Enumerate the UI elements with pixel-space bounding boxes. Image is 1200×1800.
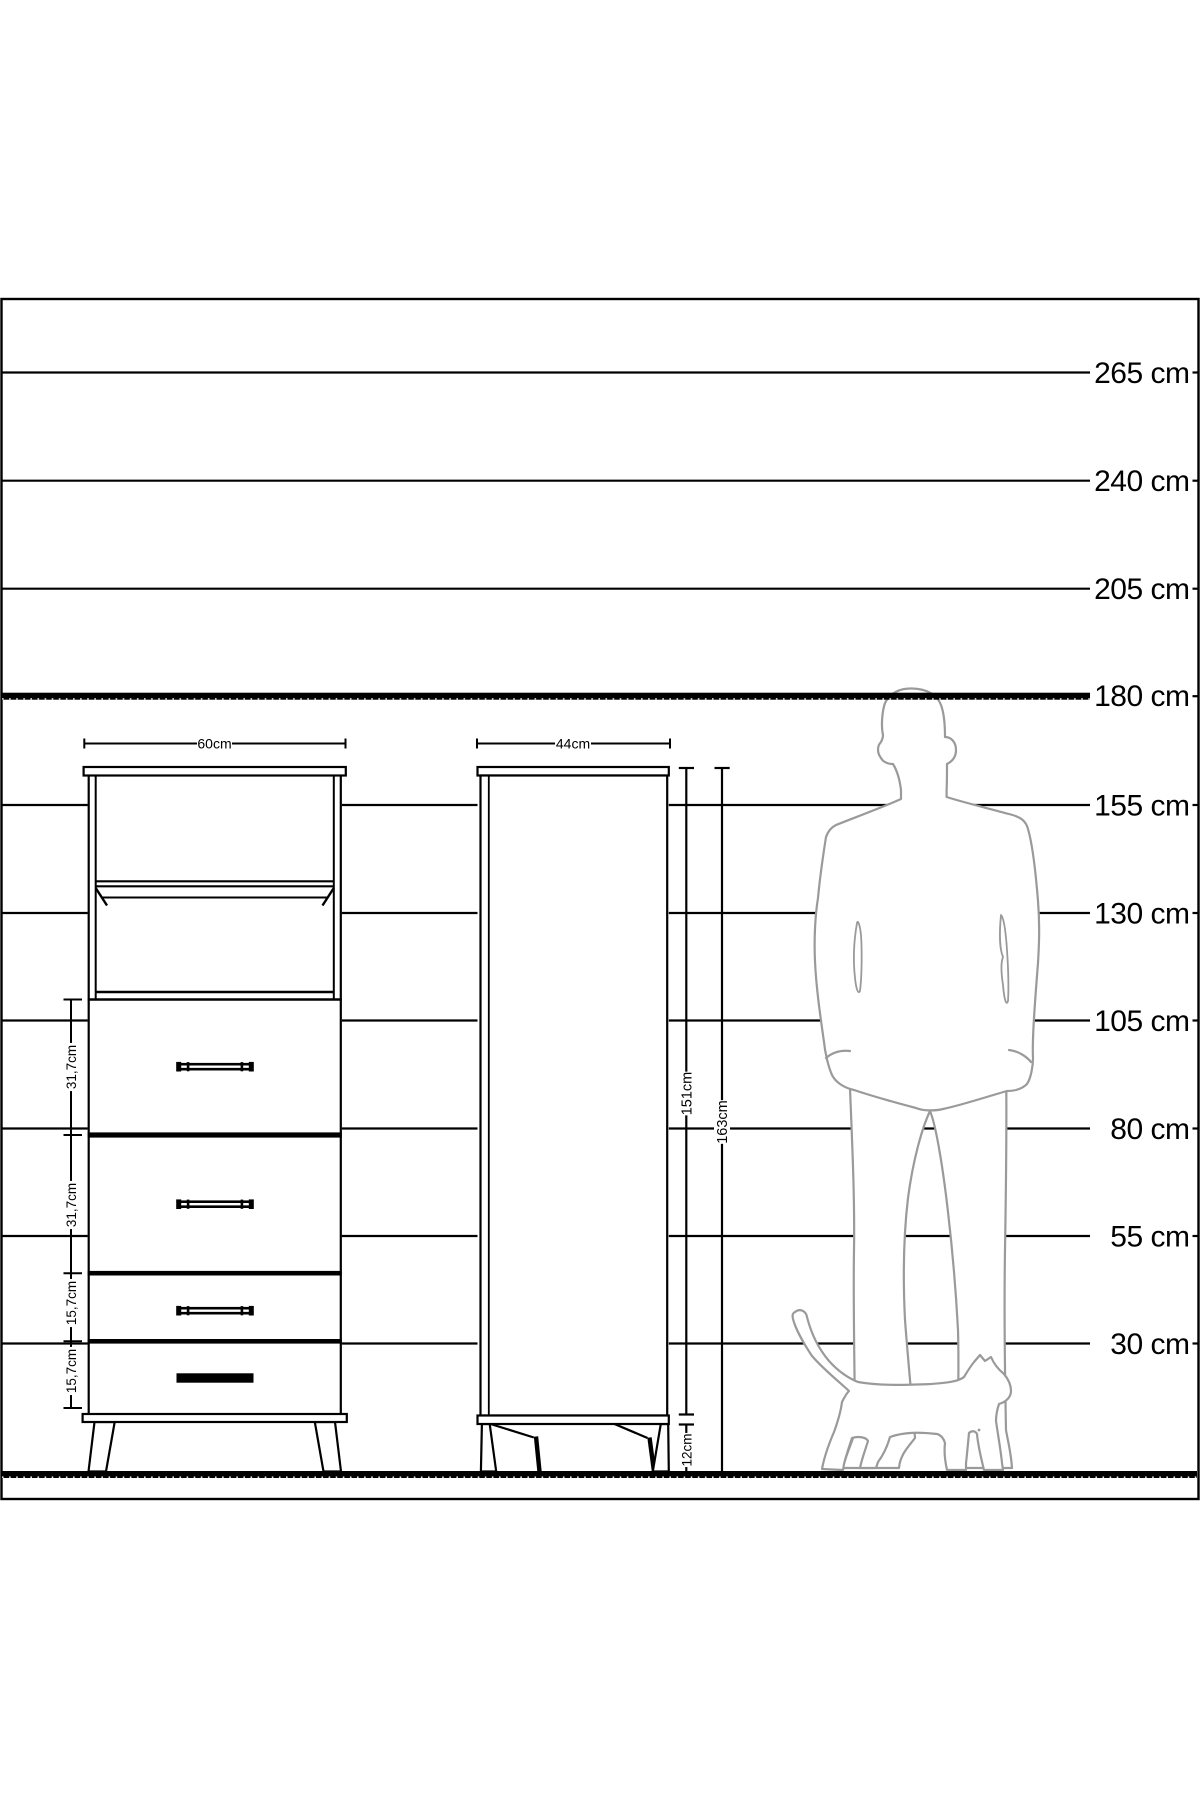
svg-text:155 cm: 155 cm xyxy=(1094,790,1189,823)
svg-text:151cm: 151cm xyxy=(679,1072,695,1116)
svg-text:265 cm: 265 cm xyxy=(1094,357,1189,390)
svg-text:240 cm: 240 cm xyxy=(1094,465,1189,498)
svg-text:80 cm: 80 cm xyxy=(1110,1113,1189,1146)
svg-text:55 cm: 55 cm xyxy=(1110,1221,1189,1254)
svg-text:205 cm: 205 cm xyxy=(1094,573,1189,606)
svg-text:105 cm: 105 cm xyxy=(1094,1005,1189,1038)
svg-text:12cm: 12cm xyxy=(679,1433,694,1466)
svg-text:180 cm: 180 cm xyxy=(1094,680,1189,713)
svg-text:30 cm: 30 cm xyxy=(1110,1328,1189,1361)
svg-text:15,7cm: 15,7cm xyxy=(64,1281,79,1325)
svg-text:44cm: 44cm xyxy=(556,736,590,752)
svg-text:163cm: 163cm xyxy=(715,1100,731,1144)
svg-text:31,7cm: 31,7cm xyxy=(64,1045,79,1089)
svg-text:31,7cm: 31,7cm xyxy=(64,1183,79,1227)
svg-text:15,7cm: 15,7cm xyxy=(64,1349,79,1393)
svg-text:130 cm: 130 cm xyxy=(1094,898,1189,931)
svg-text:60cm: 60cm xyxy=(197,736,231,752)
